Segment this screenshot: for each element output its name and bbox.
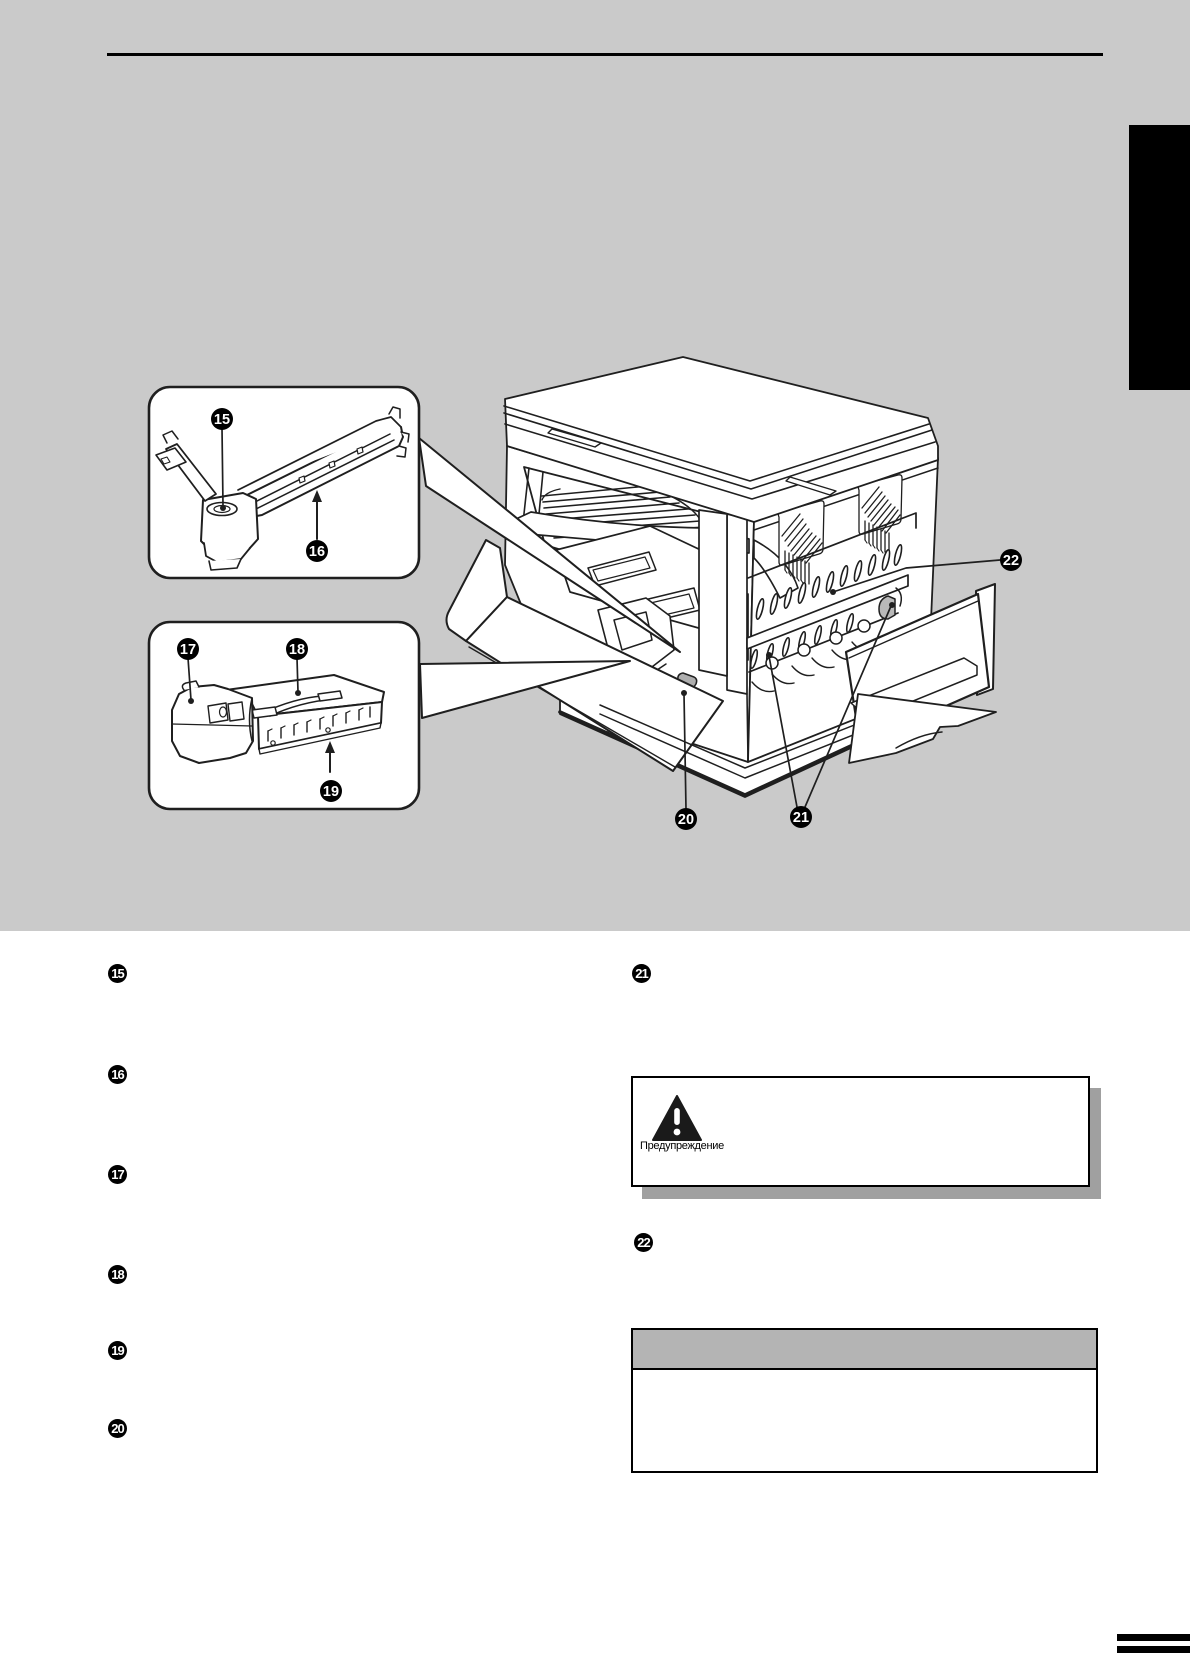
svg-text:19: 19 xyxy=(323,784,339,800)
svg-text:21: 21 xyxy=(793,810,809,826)
svg-text:16: 16 xyxy=(309,544,325,560)
svg-text:20: 20 xyxy=(678,812,694,828)
svg-text:15: 15 xyxy=(214,412,230,428)
svg-text:22: 22 xyxy=(1003,553,1019,569)
svg-text:17: 17 xyxy=(180,642,196,658)
svg-text:18: 18 xyxy=(289,642,305,658)
